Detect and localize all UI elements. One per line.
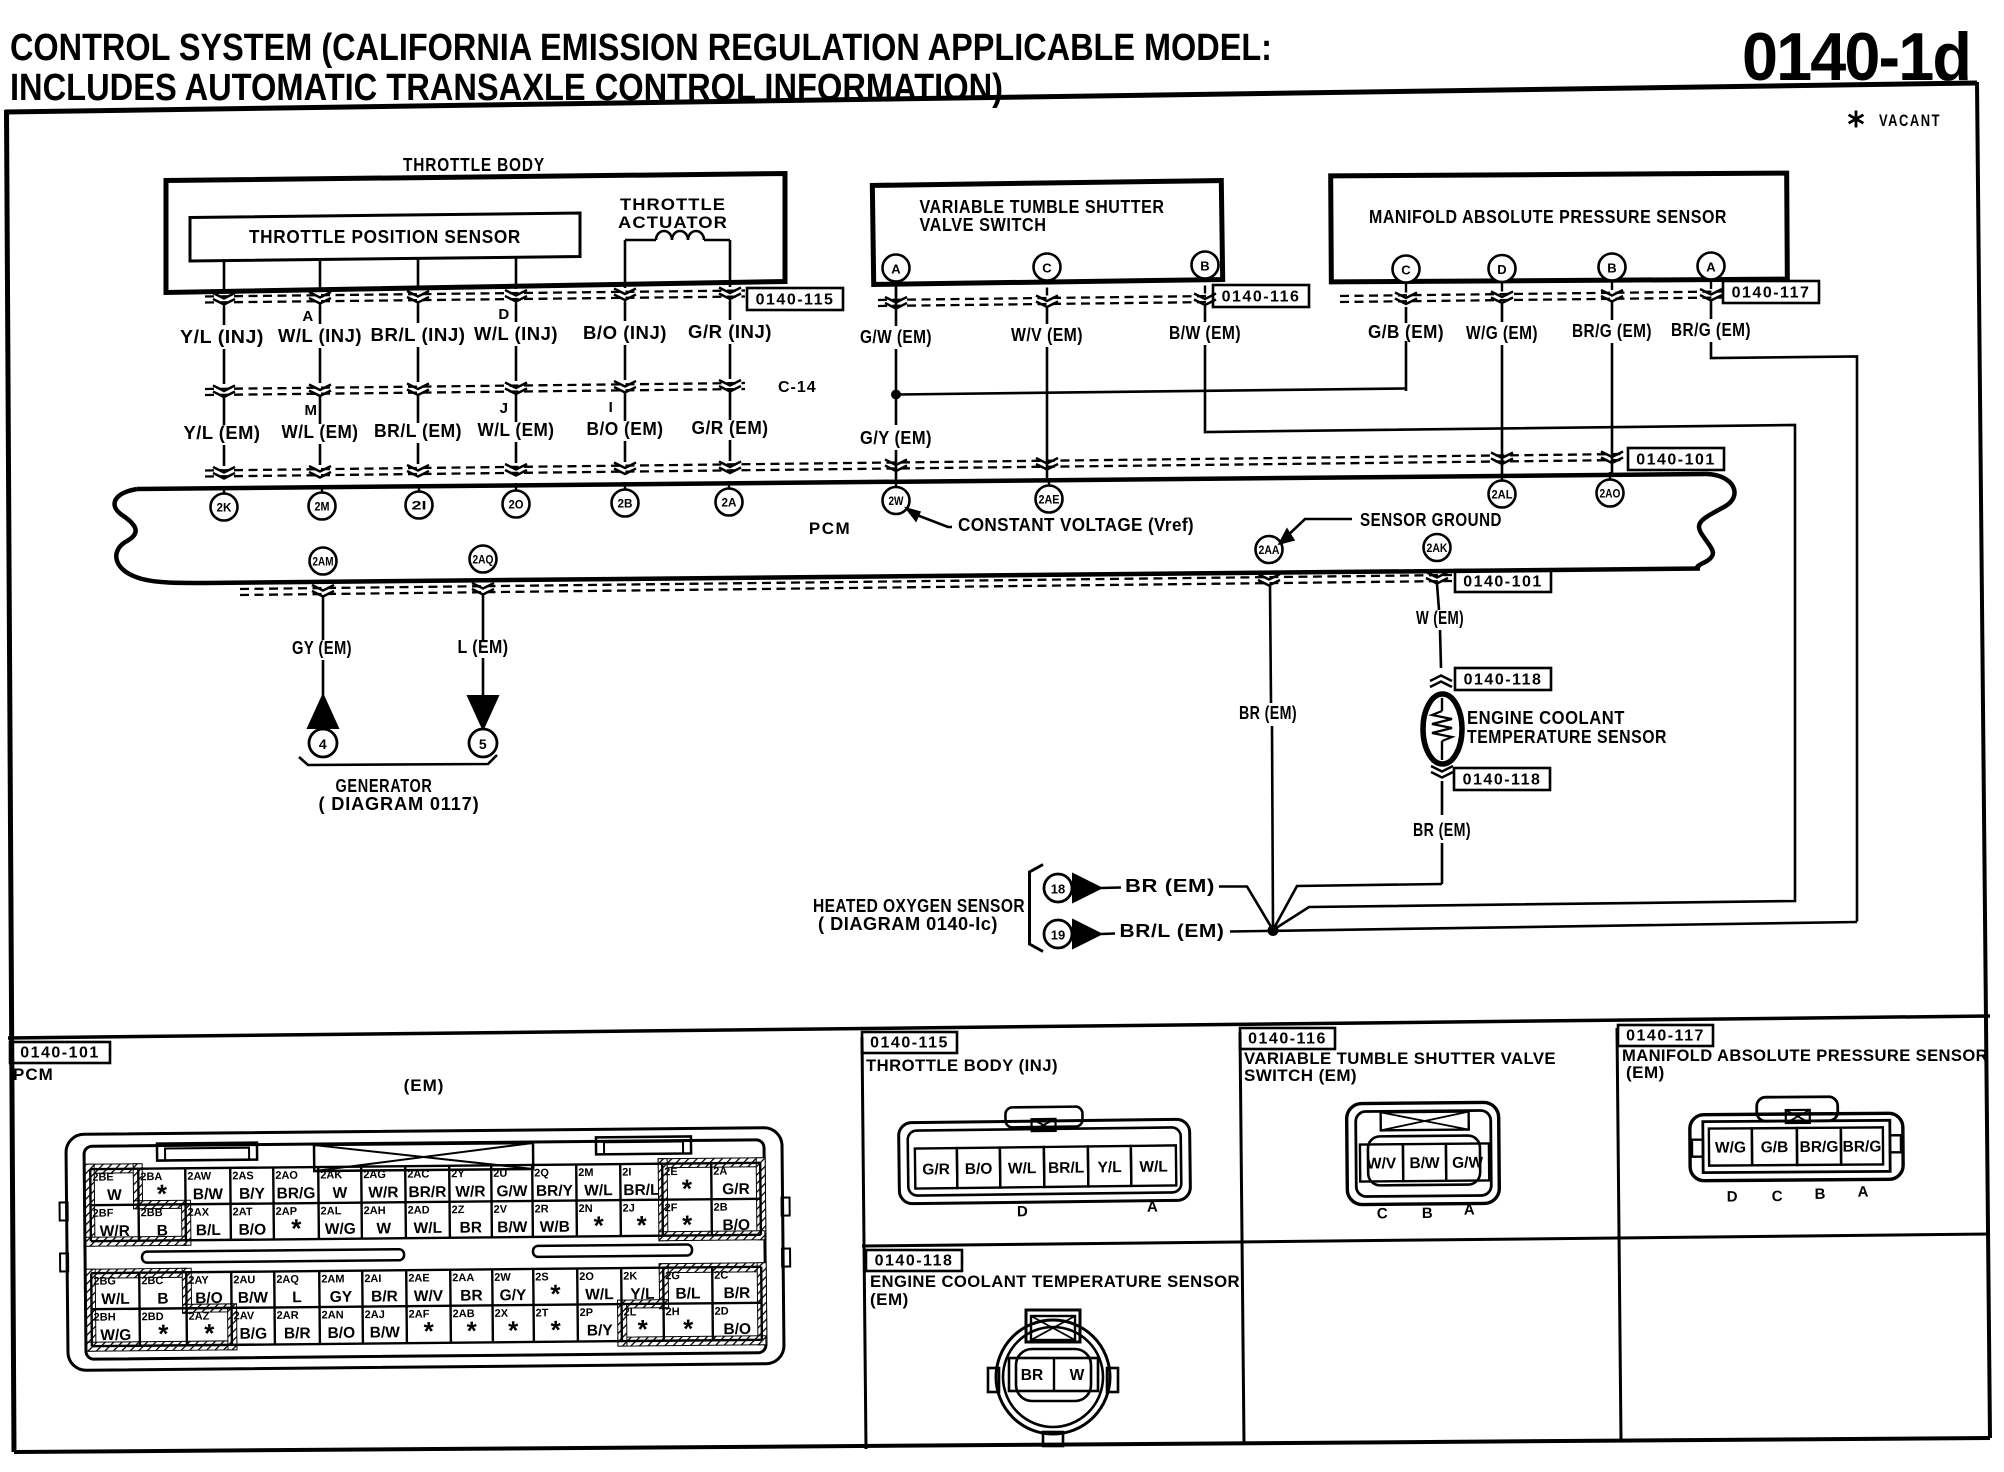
svg-text:SWITCH (EM): SWITCH (EM) (1244, 1066, 1357, 1085)
svg-text:B/L: B/L (196, 1222, 221, 1239)
svg-text:2AG: 2AG (363, 1169, 386, 1181)
svg-text:B/O (EM): B/O (EM) (587, 419, 664, 439)
svg-text:B/O: B/O (723, 1321, 751, 1338)
svg-text:B/R: B/R (284, 1325, 311, 1342)
svg-text:B/G: B/G (239, 1326, 267, 1343)
svg-text:2B: 2B (714, 1202, 728, 1214)
svg-text:2AL: 2AL (1492, 490, 1513, 502)
svg-text:D: D (498, 306, 509, 323)
svg-text:B/W (EM): B/W (EM) (1169, 323, 1241, 343)
svg-text:*: * (683, 1313, 694, 1343)
svg-text:G/B (EM): G/B (EM) (1368, 322, 1444, 342)
svg-text:2AI: 2AI (364, 1273, 381, 1285)
svg-text:2X: 2X (495, 1308, 509, 1320)
svg-text:2S: 2S (535, 1271, 549, 1283)
svg-text:Y/L: Y/L (630, 1286, 654, 1303)
svg-text:2Q: 2Q (534, 1167, 549, 1179)
svg-text:B: B (1815, 1186, 1826, 1203)
svg-text:G/Y: G/Y (500, 1287, 528, 1304)
svg-text:*: * (508, 1315, 519, 1345)
svg-text:SENSOR GROUND: SENSOR GROUND (1360, 510, 1502, 530)
svg-text:2M: 2M (578, 1167, 593, 1179)
svg-text:2BC: 2BC (141, 1275, 163, 1287)
svg-text:G/R: G/R (922, 1161, 950, 1178)
svg-text:2AS: 2AS (232, 1170, 254, 1182)
svg-text:2AE: 2AE (1039, 495, 1060, 507)
svg-text:2J: 2J (623, 1202, 635, 1214)
svg-text:GY (EM): GY (EM) (292, 638, 352, 658)
svg-text:2V: 2V (494, 1204, 508, 1216)
svg-text:0140-116: 0140-116 (1248, 1031, 1327, 1048)
svg-text:2AJ: 2AJ (365, 1309, 385, 1321)
svg-text:2O: 2O (509, 500, 524, 512)
svg-text:BR/Y: BR/Y (536, 1183, 574, 1200)
svg-text:HEATED OXYGEN SENSOR: HEATED OXYGEN SENSOR (813, 896, 1025, 916)
svg-text:*: * (637, 1210, 648, 1240)
svg-text:*: * (550, 1279, 561, 1309)
svg-text:D: D (1727, 1188, 1738, 1205)
svg-text:W/R: W/R (368, 1184, 398, 1201)
svg-text:B/W: B/W (497, 1219, 528, 1236)
svg-text:*: * (424, 1316, 435, 1346)
svg-text:W/B: W/B (540, 1219, 570, 1236)
svg-text:2R: 2R (535, 1203, 549, 1215)
svg-text:A: A (1706, 260, 1716, 275)
svg-text:W/L: W/L (584, 1182, 613, 1199)
svg-text:THROTTLE BODY: THROTTLE BODY (403, 155, 545, 175)
svg-text:L (EM): L (EM) (458, 637, 509, 657)
svg-text:2P: 2P (580, 1307, 594, 1319)
svg-text:B/Y: B/Y (587, 1322, 614, 1339)
svg-text:2Y: 2Y (451, 1168, 465, 1180)
svg-text:B/R: B/R (724, 1285, 751, 1302)
svg-text:2AH: 2AH (364, 1205, 386, 1217)
svg-text:2K: 2K (623, 1270, 637, 1282)
svg-text:2AA: 2AA (1259, 545, 1280, 557)
svg-text:B/O: B/O (965, 1161, 993, 1178)
svg-text:A: A (1464, 1202, 1475, 1219)
svg-text:W/L: W/L (414, 1220, 443, 1237)
svg-text:2AO: 2AO (1600, 489, 1621, 501)
svg-text:2L: 2L (624, 1306, 637, 1318)
svg-text:BR/L (EM): BR/L (EM) (1120, 921, 1225, 941)
svg-text:2AO: 2AO (275, 1170, 298, 1182)
svg-text:BR/L: BR/L (623, 1182, 659, 1199)
svg-text:2AL: 2AL (321, 1205, 342, 1217)
svg-text:( DIAGRAM 0140-Ic): ( DIAGRAM 0140-Ic) (818, 914, 998, 934)
svg-text:BR/G: BR/G (1800, 1139, 1839, 1156)
svg-text:*: * (291, 1213, 302, 1243)
svg-text:( DIAGRAM 0117): ( DIAGRAM 0117) (319, 794, 480, 814)
svg-text:B: B (157, 1222, 168, 1239)
svg-text:W/V: W/V (1367, 1155, 1397, 1172)
svg-text:B/O: B/O (722, 1217, 750, 1234)
svg-text:PCM: PCM (13, 1065, 54, 1084)
svg-text:BR/L (EM): BR/L (EM) (374, 421, 462, 441)
svg-text:B/W: B/W (370, 1324, 401, 1341)
svg-text:W/G: W/G (1715, 1139, 1746, 1156)
svg-text:2K: 2K (217, 503, 233, 515)
svg-text:2BF: 2BF (93, 1207, 114, 1219)
svg-text:B/L: B/L (675, 1285, 700, 1302)
svg-text:VARIABLE TUMBLE SHUTTER: VARIABLE TUMBLE SHUTTER (920, 197, 1165, 217)
svg-text:2AU: 2AU (233, 1274, 255, 1286)
svg-text:G/W (EM): G/W (EM) (860, 327, 932, 347)
svg-text:2AY: 2AY (188, 1275, 209, 1287)
svg-text:D: D (1497, 262, 1506, 277)
svg-text:MANIFOLD ABSOLUTE PRESSURE SEN: MANIFOLD ABSOLUTE PRESSURE SENSOR (1369, 207, 1727, 227)
svg-text:2AK: 2AK (320, 1169, 342, 1181)
svg-text:2T: 2T (536, 1307, 549, 1319)
svg-text:B/W: B/W (238, 1290, 269, 1307)
svg-text:BR/G (EM): BR/G (EM) (1572, 321, 1652, 341)
svg-text:W/R: W/R (455, 1183, 485, 1200)
svg-text:Y/L (EM): Y/L (EM) (184, 423, 261, 443)
svg-text:ACTUATOR: ACTUATOR (618, 213, 728, 232)
svg-text:2H: 2H (666, 1306, 680, 1318)
svg-text:BR/R: BR/R (408, 1184, 446, 1201)
svg-text:B/W: B/W (193, 1186, 224, 1203)
svg-text:2C: 2C (714, 1270, 728, 1282)
svg-text:BR: BR (460, 1287, 483, 1304)
svg-text:BR/G (EM): BR/G (EM) (1671, 320, 1751, 340)
svg-text:2N: 2N (579, 1203, 593, 1215)
svg-text:G/R: G/R (722, 1181, 750, 1198)
svg-text:D: D (1017, 1203, 1029, 1220)
svg-text:W/G: W/G (100, 1327, 131, 1344)
svg-text:W/L (INJ): W/L (INJ) (474, 324, 558, 344)
svg-text:A: A (891, 262, 901, 277)
svg-text:BR/L: BR/L (1048, 1160, 1084, 1177)
svg-text:CONSTANT VOLTAGE (Vref): CONSTANT VOLTAGE (Vref) (958, 515, 1194, 535)
svg-text:BR: BR (460, 1219, 483, 1236)
svg-text:2O: 2O (579, 1271, 594, 1283)
svg-text:*: * (158, 1318, 169, 1348)
svg-text:TEMPERATURE SENSOR: TEMPERATURE SENSOR (1467, 727, 1667, 747)
svg-text:BR: BR (1021, 1367, 1043, 1384)
svg-text:(EM): (EM) (1626, 1063, 1665, 1082)
svg-text:C: C (1772, 1188, 1783, 1205)
svg-text:*: * (204, 1318, 215, 1348)
svg-text:2Z: 2Z (452, 1204, 465, 1216)
svg-text:(EM): (EM) (870, 1290, 909, 1309)
svg-text:B/R: B/R (371, 1288, 398, 1305)
svg-text:Y/L (INJ): Y/L (INJ) (180, 327, 264, 347)
svg-text:*: * (157, 1178, 168, 1208)
svg-text:W: W (333, 1185, 348, 1202)
svg-text:2E: 2E (664, 1166, 678, 1178)
svg-text:2W: 2W (494, 1272, 511, 1284)
svg-text:BR/G: BR/G (277, 1185, 316, 1202)
svg-text:2AC: 2AC (407, 1168, 429, 1180)
svg-text:C: C (1042, 261, 1052, 276)
svg-text:B/O: B/O (327, 1325, 355, 1342)
svg-text:BR (EM): BR (EM) (1239, 703, 1297, 723)
svg-text:*: * (682, 1173, 693, 1203)
svg-text:*: * (682, 1209, 693, 1239)
svg-text:19: 19 (1051, 928, 1065, 943)
svg-text:B: B (1422, 1205, 1433, 1222)
svg-text:*: * (594, 1210, 605, 1240)
svg-text:M: M (305, 402, 318, 419)
svg-text:Y/L: Y/L (1097, 1159, 1121, 1176)
svg-text:W: W (376, 1220, 391, 1237)
svg-text:2BB: 2BB (141, 1207, 163, 1219)
svg-text:G/W: G/W (496, 1183, 528, 1200)
svg-text:W/L: W/L (585, 1286, 614, 1303)
svg-text:W/G: W/G (325, 1221, 356, 1238)
svg-text:2AA: 2AA (452, 1272, 474, 1284)
svg-text:2AV: 2AV (234, 1310, 255, 1322)
svg-text:*: * (467, 1315, 478, 1345)
svg-text:W/L (EM): W/L (EM) (282, 422, 359, 442)
svg-text:18: 18 (1051, 882, 1065, 897)
svg-text:BR/L (INJ): BR/L (INJ) (371, 325, 466, 345)
svg-text:0140-101: 0140-101 (1463, 574, 1543, 591)
svg-text:0140-118: 0140-118 (875, 1253, 954, 1270)
svg-text:2G: 2G (665, 1270, 680, 1282)
svg-text:B/O (INJ): B/O (INJ) (583, 323, 667, 343)
svg-text:GY: GY (330, 1289, 353, 1306)
svg-text:2A: 2A (713, 1166, 727, 1178)
svg-text:0140-116: 0140-116 (1222, 289, 1301, 306)
svg-text:J: J (500, 400, 509, 417)
svg-text:2AR: 2AR (277, 1310, 299, 1322)
svg-text:W/R: W/R (100, 1223, 130, 1240)
svg-text:2AN: 2AN (322, 1309, 344, 1321)
svg-text:2BE: 2BE (92, 1171, 114, 1183)
svg-text:0140-118: 0140-118 (1464, 672, 1543, 689)
svg-text:C: C (1401, 263, 1411, 278)
svg-text:W (EM): W (EM) (1416, 608, 1464, 628)
svg-text:B/O: B/O (238, 1222, 266, 1239)
svg-text:2M: 2M (315, 502, 330, 514)
svg-text:W: W (107, 1187, 122, 1204)
svg-text:2F: 2F (665, 1202, 678, 1214)
svg-text:VALVE SWITCH: VALVE SWITCH (920, 215, 1047, 235)
svg-text:2AE: 2AE (408, 1272, 430, 1284)
svg-text:I: I (609, 399, 614, 416)
svg-text:B/Y: B/Y (239, 1186, 266, 1203)
svg-text:2BG: 2BG (93, 1275, 116, 1287)
svg-text:0140-118: 0140-118 (1463, 772, 1542, 789)
svg-text:2A: 2A (722, 498, 737, 510)
svg-text:2I: 2I (412, 501, 427, 513)
svg-text:W/L (INJ): W/L (INJ) (278, 326, 362, 346)
svg-text:W/L: W/L (1139, 1158, 1168, 1175)
svg-text:THROTTLE: THROTTLE (620, 195, 726, 214)
svg-text:2AQ: 2AQ (473, 555, 494, 567)
svg-text:*: * (638, 1314, 649, 1344)
svg-text:G/Y (EM): G/Y (EM) (860, 428, 932, 448)
svg-text:2BH: 2BH (94, 1311, 116, 1323)
svg-text:4: 4 (319, 736, 327, 752)
svg-text:0140-101: 0140-101 (20, 1045, 100, 1062)
svg-text:L: L (292, 1289, 302, 1306)
svg-text:2AT: 2AT (233, 1206, 253, 1218)
svg-text:B: B (1200, 259, 1209, 274)
svg-text:C-14: C-14 (778, 379, 817, 396)
svg-text:BR (EM): BR (EM) (1125, 876, 1215, 896)
svg-text:2AX: 2AX (188, 1207, 210, 1219)
svg-text:(EM): (EM) (404, 1076, 445, 1095)
svg-text:B: B (1607, 261, 1616, 276)
svg-text:G/W: G/W (1452, 1154, 1484, 1171)
svg-text:G/R (INJ): G/R (INJ) (688, 322, 772, 342)
svg-text:G/R (EM): G/R (EM) (692, 418, 769, 438)
svg-text:A: A (1147, 1199, 1159, 1216)
svg-text:BR (EM): BR (EM) (1413, 820, 1471, 840)
svg-text:W/L (EM): W/L (EM) (478, 420, 555, 440)
svg-text:CONTROL SYSTEM (CALIFORNIA EMI: CONTROL SYSTEM (CALIFORNIA EMISSION REGU… (10, 27, 1272, 69)
svg-text:PCM: PCM (809, 519, 851, 538)
svg-text:0140-101: 0140-101 (1636, 452, 1716, 469)
svg-text:W/L: W/L (1008, 1160, 1037, 1177)
svg-text:ENGINE COOLANT: ENGINE COOLANT (1467, 708, 1625, 728)
svg-text:2B: 2B (618, 499, 633, 511)
svg-text:THROTTLE BODY (INJ): THROTTLE BODY (INJ) (866, 1056, 1058, 1075)
svg-text:GENERATOR: GENERATOR (336, 776, 433, 796)
svg-text:W/V (EM): W/V (EM) (1011, 325, 1083, 345)
svg-text:2AW: 2AW (187, 1171, 212, 1183)
svg-text:2AQ: 2AQ (276, 1274, 299, 1286)
svg-text:ENGINE COOLANT TEMPERATURE SEN: ENGINE COOLANT TEMPERATURE SENSOR (870, 1272, 1240, 1291)
svg-text:A: A (1858, 1183, 1869, 1200)
svg-text:BR/G: BR/G (1843, 1138, 1882, 1155)
svg-text:B/O: B/O (195, 1290, 223, 1307)
svg-text:2D: 2D (715, 1306, 729, 1318)
svg-text:2AM: 2AM (321, 1273, 344, 1285)
svg-text:0140-117: 0140-117 (1732, 285, 1811, 302)
svg-text:B: B (157, 1290, 168, 1307)
svg-text:0140-115: 0140-115 (756, 292, 835, 309)
svg-text:W/G (EM): W/G (EM) (1466, 323, 1538, 343)
svg-text:5: 5 (479, 736, 487, 752)
svg-text:0140-117: 0140-117 (1626, 1028, 1705, 1045)
svg-text:2AD: 2AD (408, 1204, 430, 1216)
svg-text:2AM: 2AM (313, 557, 334, 569)
svg-text:W: W (1070, 1367, 1085, 1384)
svg-text:G/B: G/B (1761, 1139, 1789, 1156)
svg-text:0140-115: 0140-115 (870, 1035, 949, 1052)
svg-text:MANIFOLD ABSOLUTE PRESSURE SEN: MANIFOLD ABSOLUTE PRESSURE SENSOR (1622, 1046, 1988, 1065)
svg-text:W/L: W/L (101, 1291, 130, 1308)
svg-text:2U: 2U (493, 1168, 507, 1180)
svg-text:2I: 2I (622, 1167, 631, 1179)
svg-text:W/V: W/V (414, 1288, 444, 1305)
svg-text:2AK: 2AK (1427, 543, 1449, 555)
svg-text:2W: 2W (889, 496, 904, 508)
svg-text:VACANT: VACANT (1879, 111, 1941, 130)
svg-text:THROTTLE POSITION SENSOR: THROTTLE POSITION SENSOR (249, 227, 521, 247)
svg-text:C: C (1377, 1205, 1388, 1222)
svg-text:A: A (302, 308, 313, 325)
svg-text:*: * (551, 1315, 562, 1345)
svg-text:B/W: B/W (1409, 1155, 1440, 1172)
